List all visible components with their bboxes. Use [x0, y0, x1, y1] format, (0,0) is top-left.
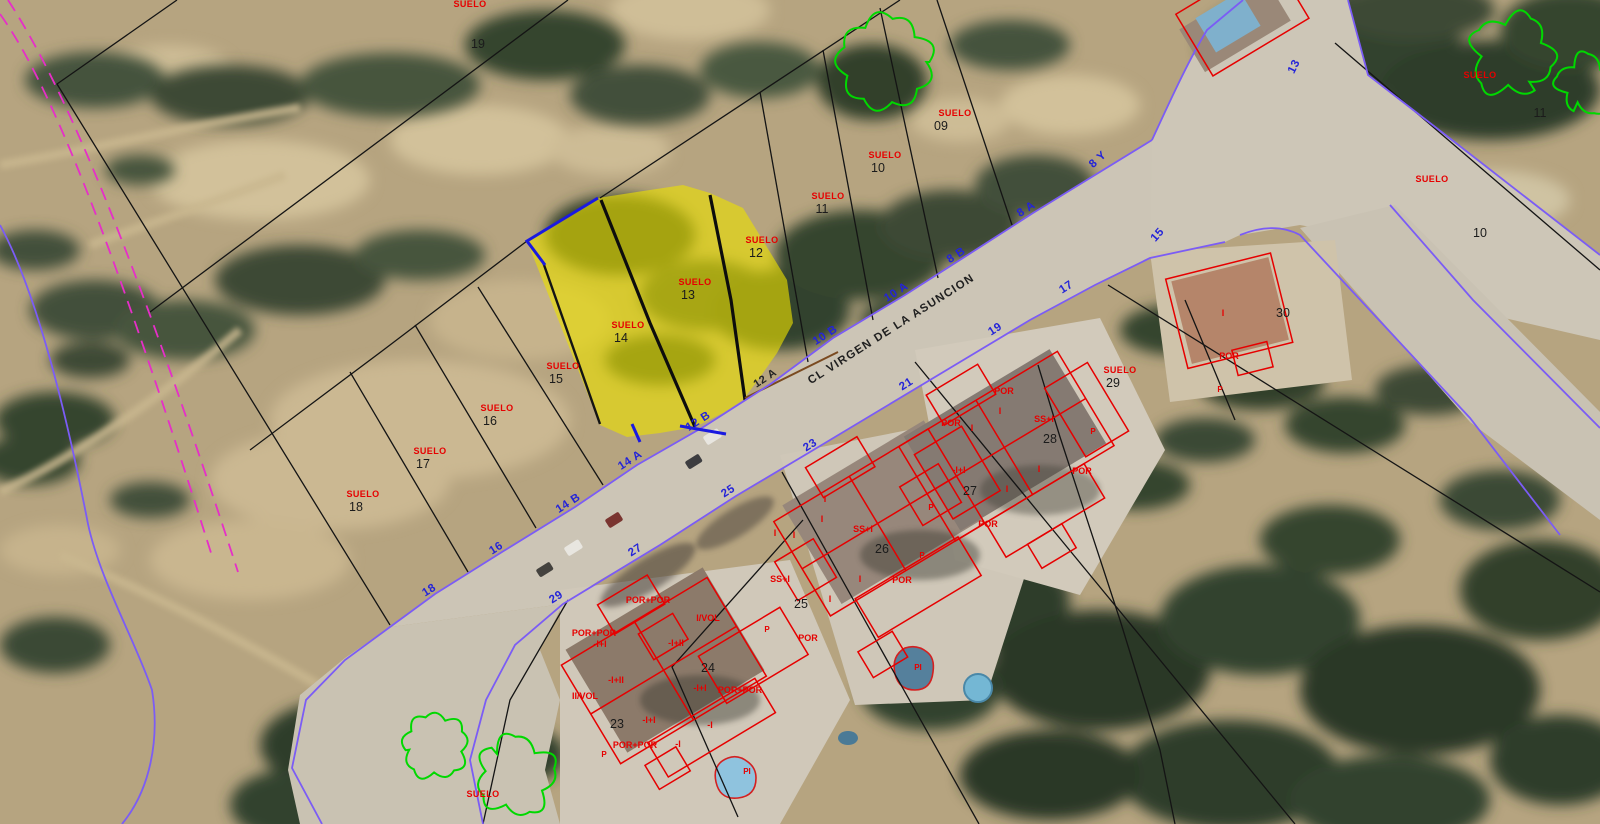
map-label: 12: [749, 246, 763, 260]
map-label: 14: [614, 331, 628, 345]
map-label: 17: [416, 457, 430, 471]
map-label: SUELO: [413, 446, 446, 456]
map-label: SUELO: [1103, 365, 1136, 375]
map-label: P: [919, 551, 925, 560]
map-label: SUELO: [868, 150, 901, 160]
map-label: I: [1038, 464, 1041, 474]
map-label: 25: [794, 597, 808, 611]
map-label: P: [1217, 385, 1223, 394]
map-label: I: [1222, 308, 1225, 318]
map-label: SS+I: [1034, 414, 1054, 424]
cadastral-map-viewport: Cadastral parcel map over aerial photo: [0, 0, 1600, 824]
map-label: I: [829, 594, 832, 604]
map-label: PI: [743, 767, 751, 776]
map-label: POR: [1072, 466, 1092, 476]
map-label: 26: [875, 542, 889, 556]
map-label: SS+I: [770, 574, 790, 584]
map-label: II/VOL: [572, 691, 599, 701]
map-label: 30: [1276, 306, 1290, 320]
map-label: SUELO: [811, 191, 844, 201]
map-label: P: [601, 750, 607, 759]
map-label: 19: [471, 37, 485, 51]
map-label: I: [821, 514, 824, 524]
cadastral-map: Cadastral parcel map over aerial photo: [0, 0, 1600, 824]
map-label: SUELO: [466, 789, 499, 799]
map-label: 10: [871, 161, 885, 175]
map-label: POR+POR: [572, 628, 617, 638]
map-label: P: [928, 503, 934, 512]
map-label: -I: [707, 720, 713, 730]
map-label: 11: [816, 202, 829, 216]
map-label: PI: [914, 663, 922, 672]
map-label: 10: [1473, 226, 1487, 240]
map-label: -I: [675, 739, 681, 749]
map-label: 28: [1043, 432, 1057, 446]
pool-small: [838, 731, 858, 745]
map-label: POR+POR: [718, 685, 763, 695]
map-label: -I+I: [952, 465, 965, 475]
map-label: POR: [1219, 351, 1239, 361]
map-label: -I+II: [608, 675, 624, 685]
map-label: POR: [798, 633, 818, 643]
map-label: -I+I: [642, 715, 655, 725]
map-label: I: [971, 423, 974, 433]
map-label: I/VOL: [696, 613, 720, 623]
map-label: P: [1090, 427, 1096, 436]
map-label: SUELO: [745, 235, 778, 245]
map-label: POR: [978, 519, 998, 529]
map-label: 16: [483, 414, 497, 428]
map-label: SUELO: [480, 403, 513, 413]
map-label: SUELO: [1415, 174, 1448, 184]
map-label: SUELO: [453, 0, 486, 9]
map-label: SUELO: [346, 489, 379, 499]
map-label: I: [824, 494, 827, 504]
map-label: 27: [963, 484, 977, 498]
map-label: I: [1006, 484, 1009, 494]
map-label: SUELO: [938, 108, 971, 118]
map-label: -I+I: [593, 639, 606, 649]
map-label: SUELO: [611, 320, 644, 330]
map-label: -I+II: [668, 638, 684, 648]
map-label: 13: [681, 288, 695, 302]
map-label: SS+I: [853, 524, 873, 534]
map-label: P: [764, 625, 770, 634]
map-label: POR+POR: [626, 595, 671, 605]
map-label: SUELO: [678, 277, 711, 287]
map-label: 11: [1534, 106, 1547, 120]
map-label: SUELO: [546, 361, 579, 371]
map-label: I: [999, 406, 1002, 416]
map-label: 15: [549, 372, 563, 386]
map-label: 18: [349, 500, 363, 514]
pool-house23: [715, 757, 756, 799]
map-label: POR: [941, 418, 961, 428]
map-label: POR: [994, 386, 1014, 396]
map-label: POR: [892, 575, 912, 585]
map-label: -I+I: [693, 683, 706, 693]
map-label: I: [774, 528, 777, 538]
map-label: 24: [701, 661, 715, 675]
map-label: POR+POR: [613, 740, 658, 750]
map-label: 29: [1106, 376, 1120, 390]
map-label: SUELO: [1463, 70, 1496, 80]
map-label: I: [793, 530, 796, 540]
map-label: 23: [610, 717, 624, 731]
pool-round: [964, 674, 992, 702]
map-label: I: [859, 574, 862, 584]
map-label: 09: [934, 119, 948, 133]
